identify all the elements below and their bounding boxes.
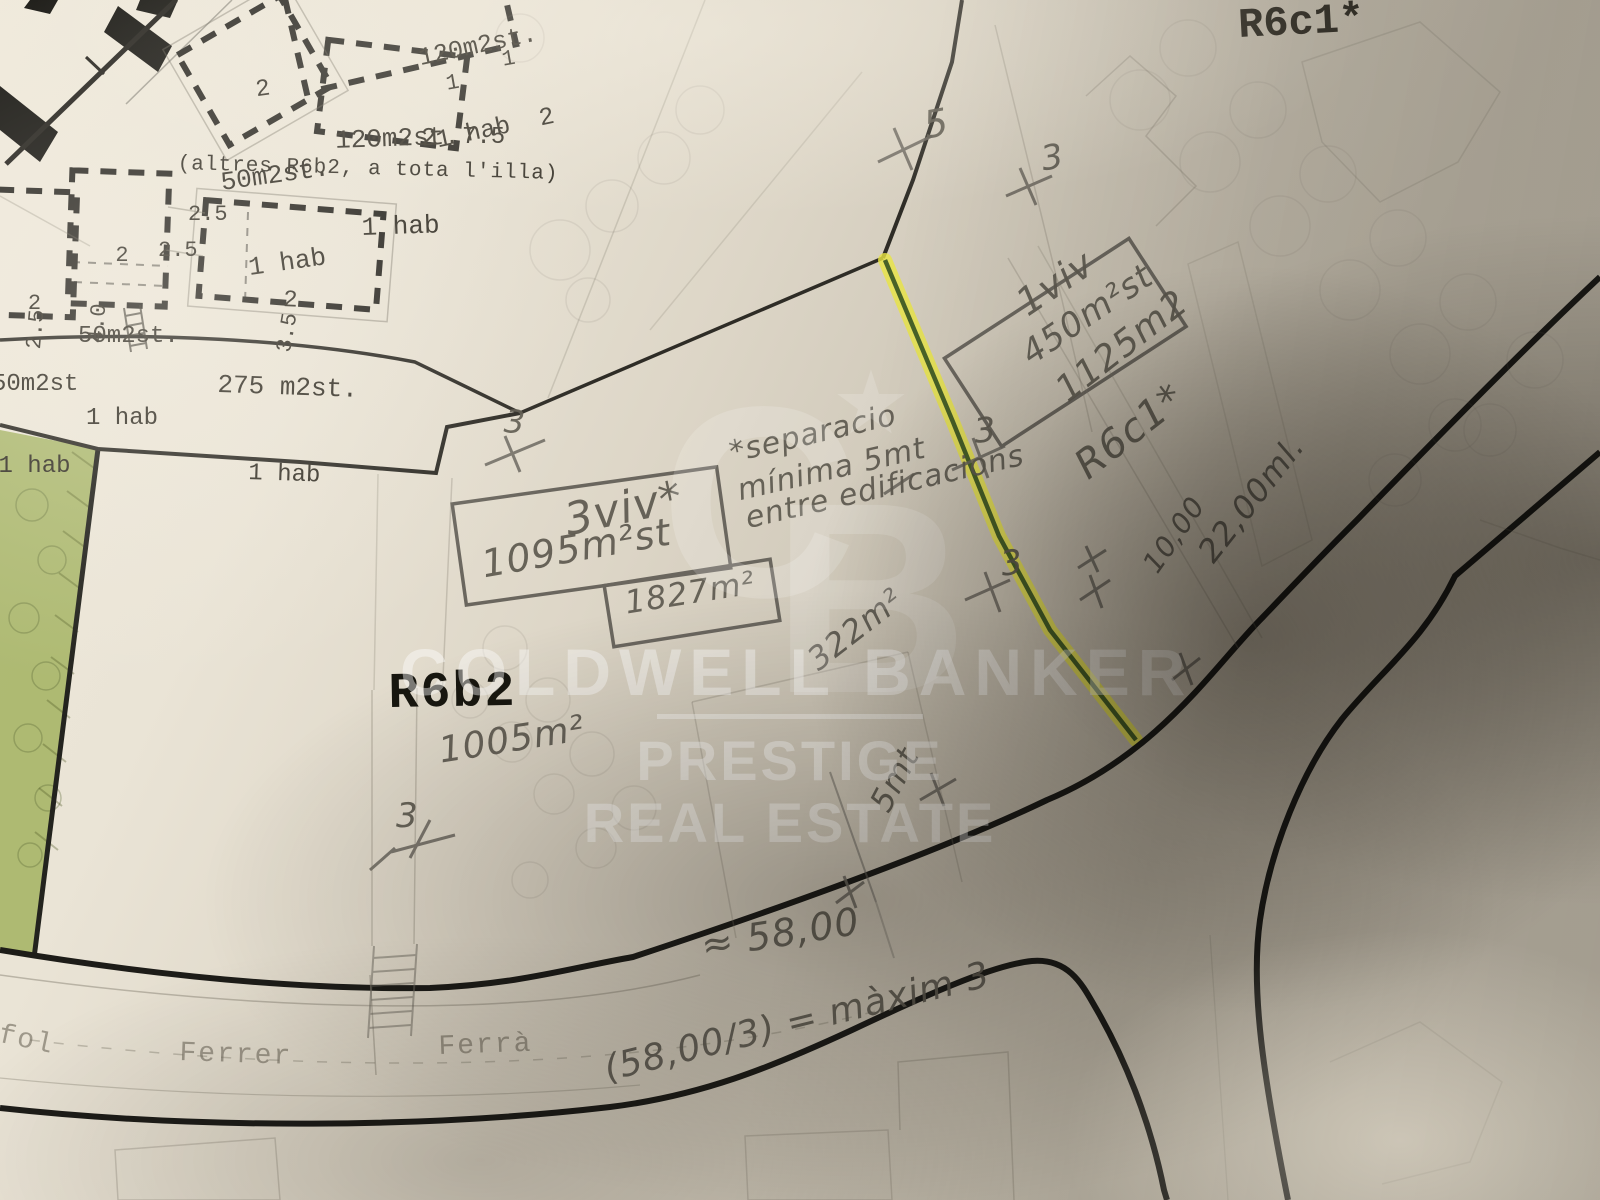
zone-label-r6b2: R6b2 — [388, 664, 517, 723]
hand-5mt: 5mt — [862, 741, 927, 818]
hand-mark-5: 5 — [920, 100, 952, 148]
dim-1-a: 1 — [444, 70, 461, 97]
hand-mark-3-mid: 3 — [972, 410, 999, 452]
dashed-parcel-boxes — [0, 0, 516, 317]
hand-1viv: 1viv — [1008, 241, 1102, 324]
dim-2-5-a: 2.5 — [188, 202, 228, 227]
watermark-monogram: C B ★ — [0, 0, 1600, 1200]
zone-boundaries — [0, 0, 962, 473]
hand-mark-3-top: 3 — [1038, 136, 1067, 179]
dim-2-5-c: 2.5 — [22, 309, 50, 351]
green-zone — [0, 425, 98, 958]
hand-r6c1: R6c1* — [1066, 375, 1193, 489]
stairs-symbol-top — [124, 305, 147, 352]
parcel-partitions — [72, 212, 248, 303]
graphite-dim-lines — [830, 772, 894, 958]
pencil-texture — [0, 0, 1600, 1200]
cadastral-plan-photo: R6c1* 2 50m2st. 1 hab 120m2st. 1 hab 2 1… — [0, 0, 1600, 1200]
hand-10-00: 10,00 — [1136, 490, 1212, 579]
highlighted-boundary — [885, 260, 1136, 740]
parcel-label-120: 120m2st. 1 hab — [330, 63, 468, 302]
hand-sep-line3: entre edificacions — [742, 438, 1028, 536]
street-name-fol: fol — [0, 1020, 57, 1062]
hand-1095: 1095m²st — [478, 510, 674, 587]
dim-7-5: 7.5 — [462, 124, 505, 151]
stairs-symbol-r6b2 — [368, 944, 417, 1038]
watermark-prestige: PRESTIGE — [500, 728, 1080, 793]
hand-mark-3-lower: 3 — [998, 542, 1026, 585]
hand-mark-3-left: 3 — [503, 402, 528, 442]
road-boundaries — [0, 277, 1600, 1200]
photo-shadow-overlay — [0, 0, 1600, 1200]
zone-label-r6c1: R6c1* — [1237, 0, 1365, 50]
hand-sep-line1: *separacio — [726, 398, 900, 470]
note-altres-r6b2: (altres R6b2, a tota l'illa) — [177, 153, 558, 186]
hand-1005: 1005m² — [436, 708, 588, 772]
dim-2-5-b: 2.5 — [158, 238, 198, 263]
hand-mark-3-r6b2: 3 — [396, 796, 419, 836]
plan-linework — [0, 0, 1600, 1200]
hand-1827: 1827m² — [622, 563, 758, 621]
solid-building-bars — [0, 0, 178, 162]
dim-1-b: 1 — [500, 46, 517, 73]
dim-4-0: 4.0 — [84, 303, 112, 345]
street-interior-lines — [0, 935, 1228, 1200]
hand-1125: 1125m2 — [1048, 282, 1196, 410]
street-lines-topleft — [6, 0, 232, 164]
watermark-underline — [657, 714, 923, 719]
photo-light-overlay — [0, 0, 1600, 1200]
parcel-label-50-upper: 2 50m2st. 1 hab — [196, 10, 355, 344]
parcel-label-50-left: 2 50m2st. 1 hab — [78, 190, 166, 486]
handwritten-boxes — [452, 238, 1186, 646]
street-name-ferra: Ferrà — [438, 1029, 533, 1063]
street-name-ferrer: Ferrer — [179, 1038, 293, 1073]
parcel-outer-lines — [163, 0, 396, 322]
svg-text:B: B — [772, 446, 968, 750]
watermark-realestate: REAL ESTATE — [500, 790, 1080, 855]
graphite-ticks — [370, 128, 1200, 908]
svg-text:★: ★ — [836, 359, 906, 447]
hand-58-00: ≈ 58,00 — [698, 899, 863, 967]
parcel-label-50-edge: 2 50m2st 1 hab — [0, 238, 77, 534]
dim-3-5: 3.5 — [272, 311, 303, 354]
hand-22-00: 22,00ml. — [1190, 428, 1312, 569]
parcel-num-2: 2 — [420, 123, 438, 154]
hand-450: 450m²st — [1014, 256, 1160, 373]
hand-formula: (58,00/3) = màxim 3 — [600, 954, 994, 1090]
parcel-label-top-cut: 120m2st. 1 hab 2 — [385, 0, 588, 215]
parcel-label-275: 2 275 m2st. 1 hab — [212, 226, 363, 549]
hand-322: 322m² — [800, 580, 910, 678]
tree-circles — [452, 14, 1563, 898]
hand-sep-line2: mínima 5mt — [734, 431, 929, 508]
svg-text:C: C — [660, 350, 856, 654]
hand-3viv: 3viv* — [560, 471, 687, 546]
watermark-brand: COLDWELL BANKER — [400, 634, 1180, 710]
